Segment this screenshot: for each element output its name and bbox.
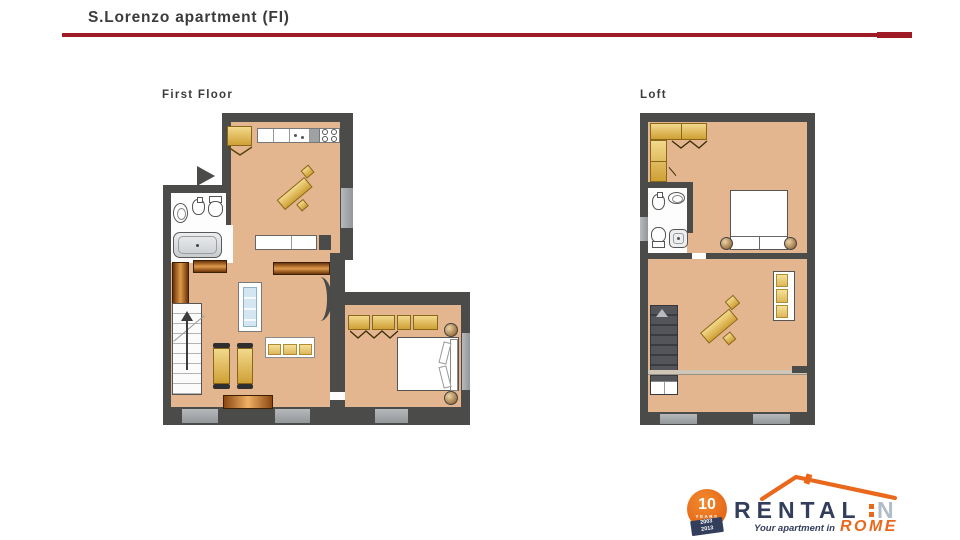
wall (330, 292, 470, 305)
bedside-lamp (784, 237, 797, 250)
loft-label: Loft (640, 89, 667, 101)
stove (320, 129, 339, 142)
doorway (692, 253, 706, 259)
double-bed (730, 190, 788, 250)
bedside-lamp (720, 237, 733, 250)
bathtub (173, 232, 222, 258)
wardrobe (227, 126, 252, 146)
wall-stub (792, 366, 807, 373)
stairs-up-arrow-icon (181, 311, 193, 321)
kitchen-sink (290, 129, 310, 142)
wall (648, 253, 692, 259)
wall (807, 113, 815, 425)
wardrobe-open-door-icon (227, 146, 253, 157)
dining-chairs (213, 343, 253, 389)
tagline-text: Your apartment in (754, 523, 835, 534)
wall (163, 185, 171, 425)
yellow-sofa (265, 337, 315, 358)
window (375, 409, 408, 423)
kitchen-sideboard (255, 235, 317, 250)
first-floor-label: First Floor (162, 89, 233, 101)
loft-plan (640, 113, 815, 425)
wardrobe-open-door-icon (671, 140, 708, 150)
railing-shadow (648, 374, 807, 375)
page: S.Lorenzo apartment (FI) First Floor Lof… (0, 0, 960, 540)
shelf (193, 260, 227, 273)
window (660, 414, 697, 424)
bathroom-window (640, 217, 648, 241)
washbasin (668, 192, 685, 204)
window (275, 409, 310, 423)
wall (222, 113, 353, 122)
headboard (450, 339, 458, 391)
bedroom-window (462, 333, 470, 390)
tagline: Your apartment inROME (754, 518, 898, 536)
first-floor-plan (163, 113, 470, 425)
toilet (208, 196, 221, 215)
shelf (273, 262, 330, 275)
sideboard (223, 395, 273, 409)
wall (330, 253, 345, 392)
toilet (651, 227, 664, 247)
kitchen-column (319, 235, 331, 250)
bed-foot (731, 236, 787, 250)
double-bed (397, 337, 459, 391)
kitchen-counter (257, 128, 340, 143)
wall (640, 113, 815, 122)
stairs-down (650, 305, 678, 395)
bidet (192, 199, 205, 215)
badge-number: 10 (687, 497, 727, 513)
bedside-lamp (444, 323, 458, 337)
header-rule (62, 33, 911, 37)
bedside-lamp (444, 391, 458, 405)
tagline-city: ROME (840, 518, 898, 535)
shower (669, 229, 688, 248)
rental-in-rome-logo: RENTAL N Your apartment inROME 10 YEARS … (680, 470, 925, 540)
wall (687, 182, 693, 233)
kitchen-window (341, 188, 353, 228)
corner-wardrobe (650, 140, 667, 182)
window (753, 414, 790, 424)
stairs-direction-icon (656, 309, 668, 317)
wall (340, 113, 353, 260)
washbasin (173, 203, 188, 223)
sofa (773, 271, 795, 321)
wall (640, 113, 648, 425)
bedroom-doorway (330, 392, 345, 400)
bedroom-wardrobe (348, 315, 438, 330)
wall (706, 253, 807, 259)
stairs-up (172, 303, 202, 395)
window (182, 409, 218, 423)
bidet (652, 194, 665, 210)
header-rule-cap (877, 32, 912, 38)
bathroom-doorway (226, 225, 233, 263)
page-title: S.Lorenzo apartment (FI) (88, 9, 290, 27)
entrance-arrow-icon (197, 166, 215, 186)
striped-sofa (238, 282, 262, 332)
counter-gap (310, 129, 320, 142)
cabinet (258, 129, 274, 142)
cabinet (274, 129, 290, 142)
wall (163, 185, 233, 193)
badge-ribbon: 2003 2013 (690, 517, 724, 536)
corner-wardrobe (650, 123, 707, 140)
